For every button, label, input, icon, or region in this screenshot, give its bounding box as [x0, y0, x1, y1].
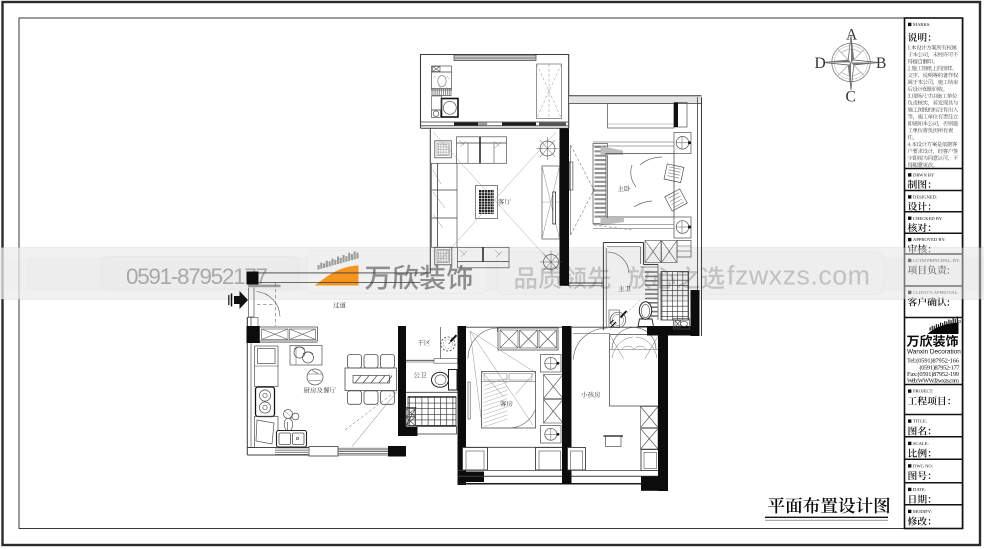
svg-text:TITLE:: TITLE:: [913, 419, 927, 424]
svg-text:CHECKED BY: CHECKED BY: [913, 216, 943, 221]
svg-text:DWG NO:: DWG NO:: [913, 464, 933, 469]
svg-text:PROJECT:: PROJECT:: [913, 389, 933, 394]
svg-text:D: D: [815, 55, 826, 72]
svg-text:Wanxin Decoration: Wanxin Decoration: [907, 348, 961, 355]
svg-text:C: C: [846, 89, 856, 106]
svg-text:MODIFY:: MODIFY:: [913, 509, 932, 514]
svg-text:MARKS:: MARKS:: [913, 22, 931, 27]
svg-text:A: A: [846, 27, 858, 44]
svg-text:B: B: [876, 55, 886, 72]
svg-text:DRWN BY: DRWN BY: [913, 173, 935, 178]
svg-text:SCALE:: SCALE:: [913, 441, 929, 446]
svg-text:fzwxzs.com: fzwxzs.com: [727, 261, 870, 291]
svg-text:Web:WWW.fzwxzs.com: Web:WWW.fzwxzs.com: [907, 377, 959, 384]
svg-text:APPROVED BY:: APPROVED BY:: [913, 237, 946, 242]
svg-text:DATE:: DATE:: [913, 487, 926, 492]
svg-text:DESIGNED:: DESIGNED:: [913, 195, 937, 200]
